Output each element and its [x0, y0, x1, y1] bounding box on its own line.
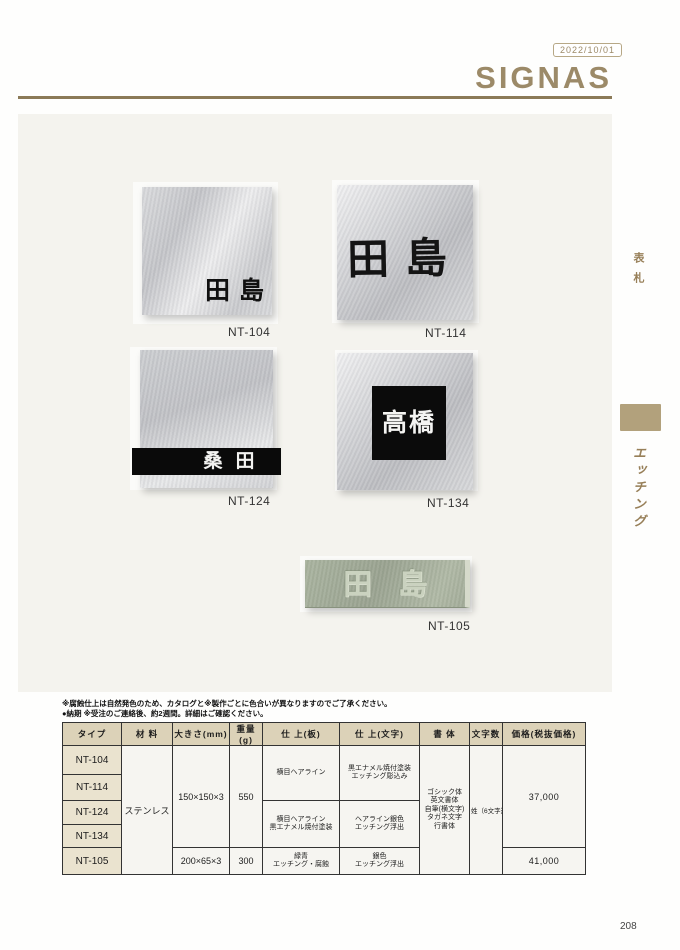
finish-line: エッチング・腐蝕 [264, 861, 338, 870]
type-cell-nt104: NT-104 [63, 746, 122, 775]
sidebar-category-etching: エッチング [629, 446, 648, 531]
finish-line: 黒エナメル焼付塗装 [341, 765, 418, 774]
spec-table: タイプ 材 料 大きさ(mm) 重量(g) 仕 上(板) 仕 上(文字) 書 体… [62, 722, 586, 875]
plate-black-square: 高橋 [372, 386, 446, 460]
finish-line: エッチング彫込み [341, 773, 418, 782]
header-rule [18, 96, 612, 99]
col-header-material: 材 料 [122, 723, 173, 746]
finish-line: エッチング浮出 [341, 824, 418, 833]
finish-text-cell-104-114: 黒エナメル焼付塗装 エッチング彫込み [340, 746, 420, 801]
plate-name-text: 田島 [346, 224, 463, 287]
typeface-line: 英文書体 [421, 797, 468, 806]
col-header-size: 大きさ(mm) [173, 723, 230, 746]
product-plate-nt104: 田島 [142, 187, 272, 315]
page-number: 208 [620, 921, 637, 932]
product-plate-nt114: 田島 [337, 185, 473, 320]
product-panel: 田島 NT-104 田島 NT-114 桑田 NT-124 高橋 NT-134 … [18, 114, 612, 692]
sidebar-tab [620, 404, 661, 431]
col-header-finish-plate: 仕 上(板) [263, 723, 340, 746]
product-label-nt114: NT-114 [425, 326, 466, 340]
type-cell-nt134: NT-134 [63, 825, 122, 848]
note-line-2: ●納期 ※受注のご連絡後、約2週間。詳細はご確認ください。 [62, 709, 582, 719]
finish-plate-cell-104-114: 横目ヘアライン [263, 746, 340, 801]
product-label-nt104: NT-104 [228, 325, 270, 339]
finish-text-cell-105: 銀色 エッチング浮出 [340, 848, 420, 875]
plate-black-band: 桑田 [132, 448, 281, 475]
finish-line: エッチング浮出 [341, 861, 418, 870]
product-label-nt124: NT-124 [228, 494, 270, 508]
finish-line: 緑青 [264, 853, 338, 862]
finish-text-cell-124-134: ヘアライン銀色 エッチング浮出 [340, 801, 420, 848]
catalog-page: 2022/10/01 SIGNAS 田島 NT-104 田島 NT-114 桑田… [0, 0, 680, 950]
product-plate-nt124: 桑田 [140, 350, 273, 488]
product-label-nt134: NT-134 [427, 496, 469, 510]
price-cell-nt105: 41,000 [503, 848, 586, 875]
col-header-charcount: 文字数 [470, 723, 503, 746]
typeface-cell: ゴシック体 英文書体 自筆(横文字) タガネ文字 行書体 [420, 746, 470, 875]
typeface-line: タガネ文字 [421, 814, 468, 823]
date-badge: 2022/10/01 [553, 43, 622, 57]
brand-logo: SIGNAS [475, 60, 612, 96]
weight-cell-main: 550 [230, 746, 263, 848]
type-cell-nt124: NT-124 [63, 801, 122, 825]
finish-plate-cell-105: 緑青 エッチング・腐蝕 [263, 848, 340, 875]
size-cell-main: 150×150×3 [173, 746, 230, 848]
finish-line: ヘアライン銀色 [341, 816, 418, 825]
col-header-finish-text: 仕 上(文字) [340, 723, 420, 746]
plate-name-text: 高橋 [382, 409, 436, 437]
weight-cell-nt105: 300 [230, 848, 263, 875]
type-cell-nt114: NT-114 [63, 775, 122, 801]
table-row: NT-104 ステンレス 150×150×3 550 横目ヘアライン 黒エナメル… [63, 746, 586, 775]
price-cell-main: 37,000 [503, 746, 586, 848]
typeface-line: 自筆(横文字) [421, 806, 468, 815]
sidebar-category-hyosatsu: 表札 [630, 252, 646, 292]
finish-line: 横目ヘアライン [264, 816, 338, 825]
col-header-typeface: 書 体 [420, 723, 470, 746]
plate-name-text: 田島 [205, 271, 273, 307]
finish-line: 銀色 [341, 853, 418, 862]
col-header-price: 価格(税抜価格) [503, 723, 586, 746]
size-cell-nt105: 200×65×3 [173, 848, 230, 875]
note-line-1: ※腐蝕仕上は自然発色のため、カタログと※製作ごとに色合いが異なりますのでご了承く… [62, 699, 582, 709]
material-cell: ステンレス [122, 746, 173, 875]
table-header-row: タイプ 材 料 大きさ(mm) 重量(g) 仕 上(板) 仕 上(文字) 書 体… [63, 723, 586, 746]
finish-line: 横目ヘアライン [264, 769, 338, 778]
product-plate-nt105: 田島 [305, 560, 470, 608]
plate-name-text: 桑田 [145, 451, 267, 472]
finish-plate-cell-124-134: 横目ヘアライン 黒エナメル焼付塗装 [263, 801, 340, 848]
charcount-cell: 姓（6文字迄） [470, 746, 503, 875]
typeface-line: ゴシック体 [421, 789, 468, 798]
col-header-type: タイプ [63, 723, 122, 746]
product-label-nt105: NT-105 [428, 619, 470, 633]
col-header-weight: 重量(g) [230, 723, 263, 746]
finish-line: 黒エナメル焼付塗装 [264, 824, 338, 833]
typeface-line: 行書体 [421, 823, 468, 832]
type-cell-nt105: NT-105 [63, 848, 122, 875]
plate-name-text: 田島 [317, 567, 453, 601]
product-plate-nt134: 高橋 [337, 353, 473, 490]
notes-block: ※腐蝕仕上は自然発色のため、カタログと※製作ごとに色合いが異なりますのでご了承く… [62, 699, 582, 718]
